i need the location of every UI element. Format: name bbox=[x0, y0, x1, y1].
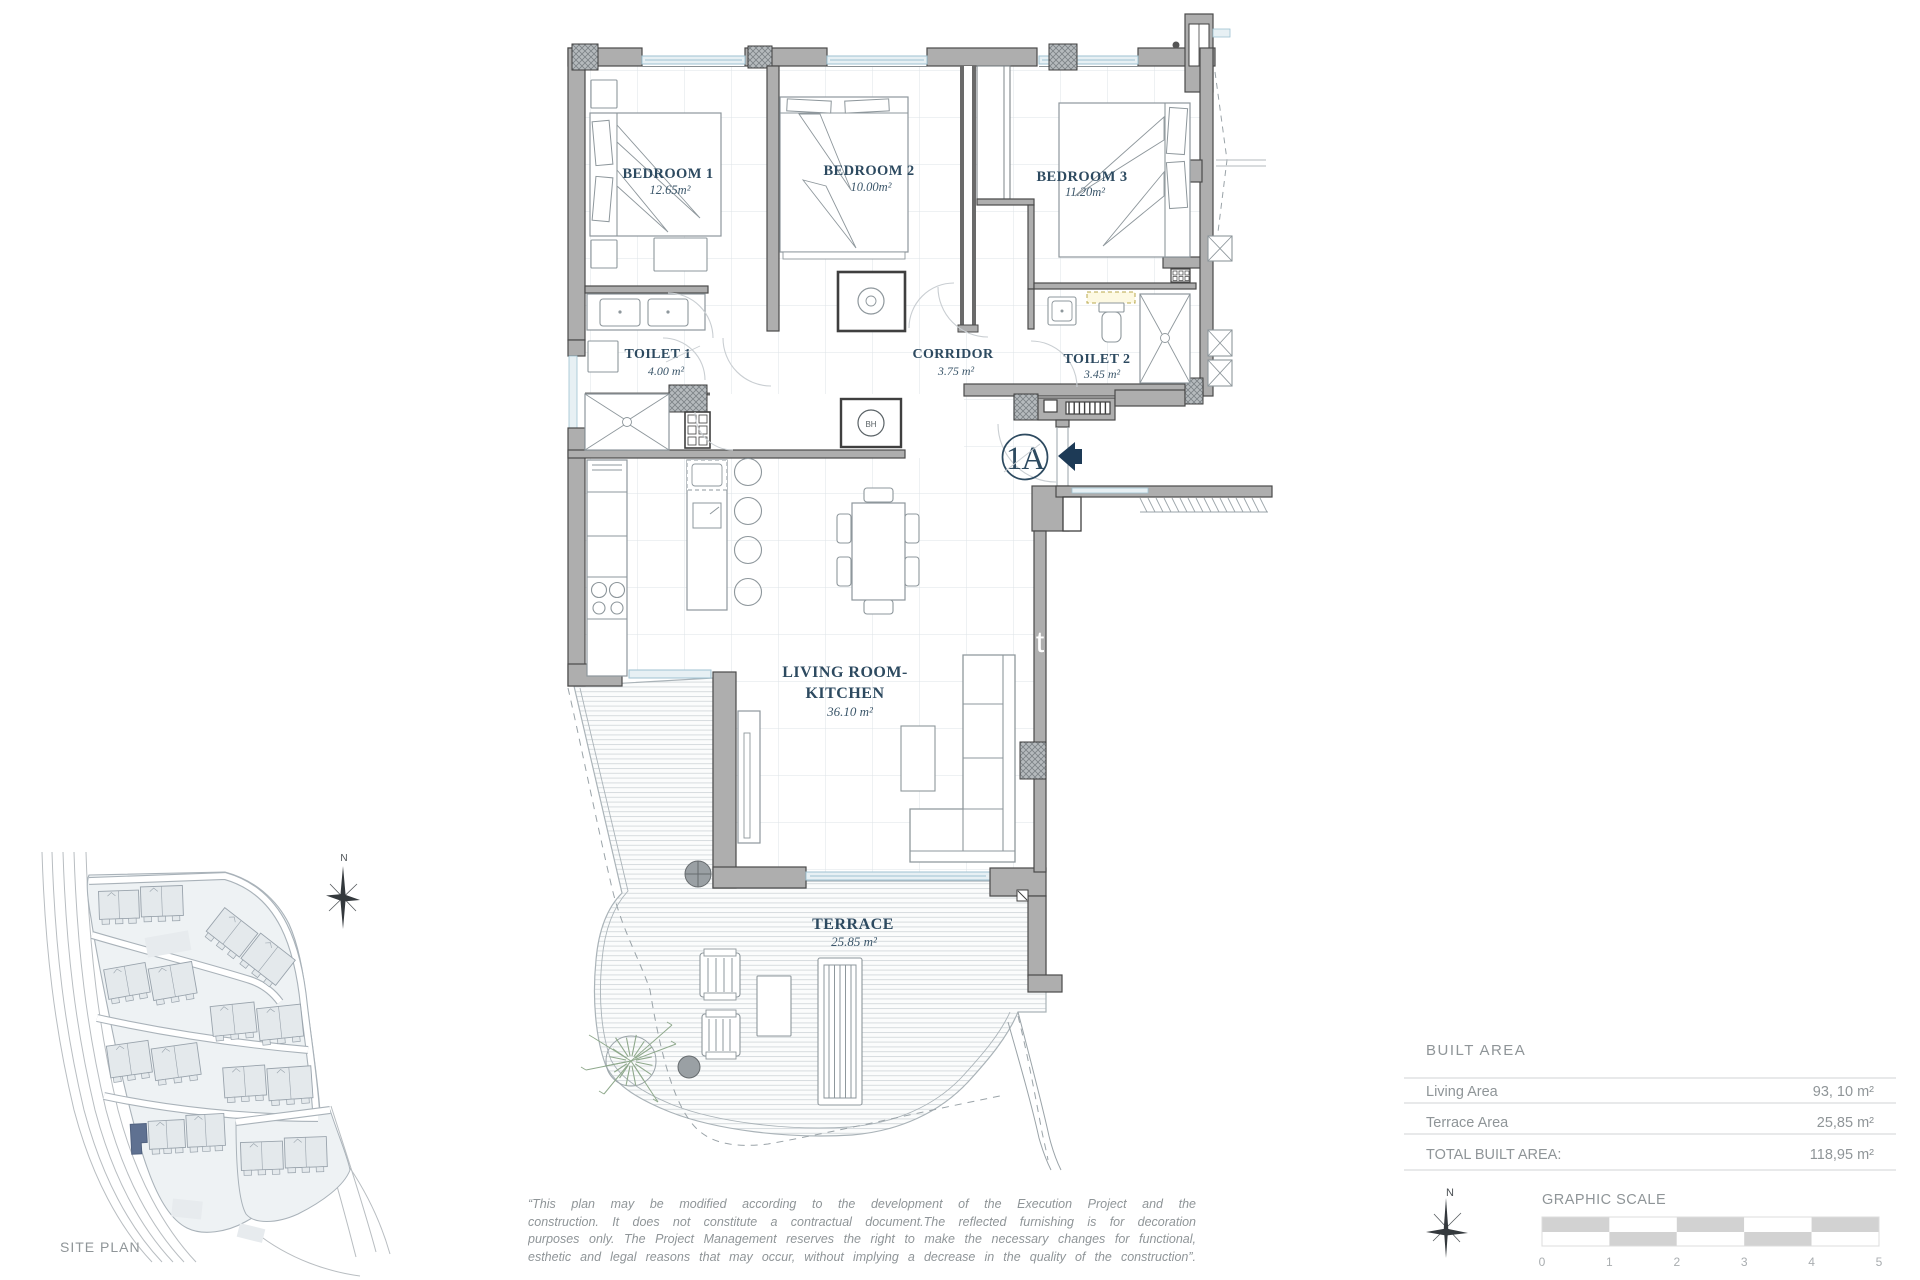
svg-text:93, 10 m²: 93, 10 m² bbox=[1813, 1084, 1874, 1100]
svg-text:12.65m²: 12.65m² bbox=[650, 183, 691, 197]
svg-text:TERRACE: TERRACE bbox=[812, 916, 894, 933]
svg-text:BEDROOM 2: BEDROOM 2 bbox=[823, 163, 914, 179]
svg-text:11.20m²: 11.20m² bbox=[1065, 185, 1105, 199]
svg-text:10.00m²: 10.00m² bbox=[851, 180, 892, 194]
svg-text:BUILT AREA: BUILT AREA bbox=[1426, 1042, 1526, 1059]
svg-text:N: N bbox=[340, 853, 347, 864]
svg-text:BH: BH bbox=[865, 420, 876, 429]
svg-text:3.75 m²: 3.75 m² bbox=[937, 364, 975, 378]
svg-text:TOILET 2: TOILET 2 bbox=[1064, 352, 1131, 367]
svg-text:TOTAL BUILT AREA:: TOTAL BUILT AREA: bbox=[1426, 1147, 1561, 1163]
svg-text:BEDROOM 1: BEDROOM 1 bbox=[622, 166, 713, 182]
svg-text:4.00 m²: 4.00 m² bbox=[648, 364, 685, 378]
svg-text:3: 3 bbox=[1741, 1255, 1748, 1269]
svg-text:25,85 m²: 25,85 m² bbox=[1817, 1115, 1874, 1131]
svg-text:t: t bbox=[1036, 626, 1045, 659]
svg-text:CORRIDOR: CORRIDOR bbox=[913, 347, 994, 362]
svg-text:Terrace Area: Terrace Area bbox=[1426, 1115, 1509, 1131]
svg-text:25.85 m²: 25.85 m² bbox=[831, 934, 878, 949]
svg-text:1A: 1A bbox=[1006, 441, 1046, 477]
svg-text:GRAPHIC SCALE: GRAPHIC SCALE bbox=[1542, 1192, 1666, 1208]
svg-text:N: N bbox=[1446, 1187, 1454, 1199]
svg-text:0: 0 bbox=[1539, 1255, 1546, 1269]
svg-text:4: 4 bbox=[1808, 1255, 1815, 1269]
svg-text:BEDROOM 3: BEDROOM 3 bbox=[1036, 169, 1127, 185]
svg-text:LIVING ROOM-: LIVING ROOM- bbox=[782, 664, 908, 681]
svg-text:118,95 m²: 118,95 m² bbox=[1810, 1147, 1874, 1163]
svg-text:1: 1 bbox=[1606, 1255, 1613, 1269]
svg-text:3.45 m²: 3.45 m² bbox=[1083, 367, 1121, 381]
svg-text:Living Area: Living Area bbox=[1426, 1084, 1499, 1100]
svg-text:2: 2 bbox=[1673, 1255, 1680, 1269]
svg-text:5: 5 bbox=[1876, 1255, 1883, 1269]
svg-text:KITCHEN: KITCHEN bbox=[805, 685, 884, 702]
svg-text:SITE PLAN: SITE PLAN bbox=[60, 1239, 141, 1255]
svg-text:36.10 m²: 36.10 m² bbox=[826, 704, 874, 719]
